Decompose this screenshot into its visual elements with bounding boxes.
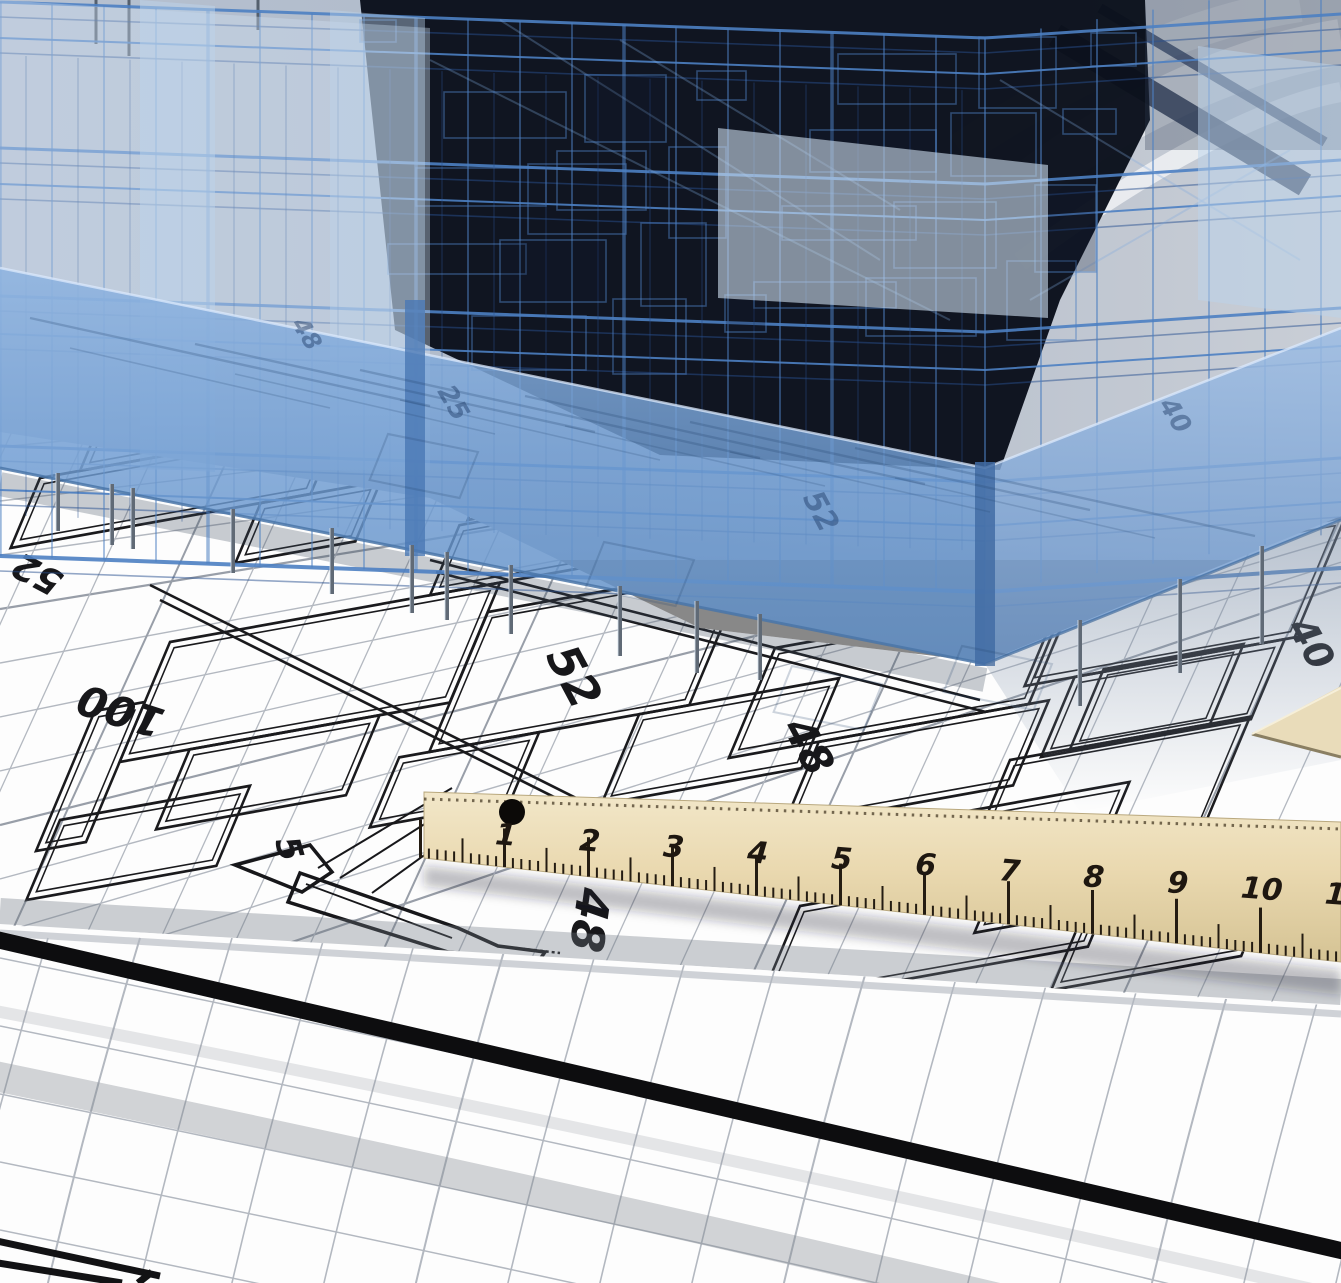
ruler-number: 1 — [494, 817, 518, 854]
ruler-number: 4 — [745, 835, 770, 872]
corner-column — [405, 300, 425, 556]
structure-cell — [725, 295, 766, 332]
ruler-number: 6 — [914, 847, 938, 884]
ruler-number: 2 — [578, 823, 602, 860]
blueprint-scene-stage: 521005248405487 48254052 — [0, 0, 1341, 1283]
ruler-number: 8 — [1082, 859, 1106, 896]
ruler-number: 9 — [1166, 865, 1190, 902]
ruler-number: 5 — [830, 841, 854, 878]
structure-cell — [500, 240, 606, 302]
blueprint-scene: 521005248405487 48254052 — [0, 0, 1341, 1283]
ruler-number: 3 — [662, 829, 686, 866]
corner-column — [975, 462, 995, 666]
ruler-number: 11 — [1324, 876, 1341, 914]
ruler-number: 10 — [1240, 870, 1284, 908]
structure-cell — [585, 75, 666, 142]
ruler-number: 7 — [998, 853, 1022, 890]
glass-panel-right — [1198, 46, 1341, 318]
